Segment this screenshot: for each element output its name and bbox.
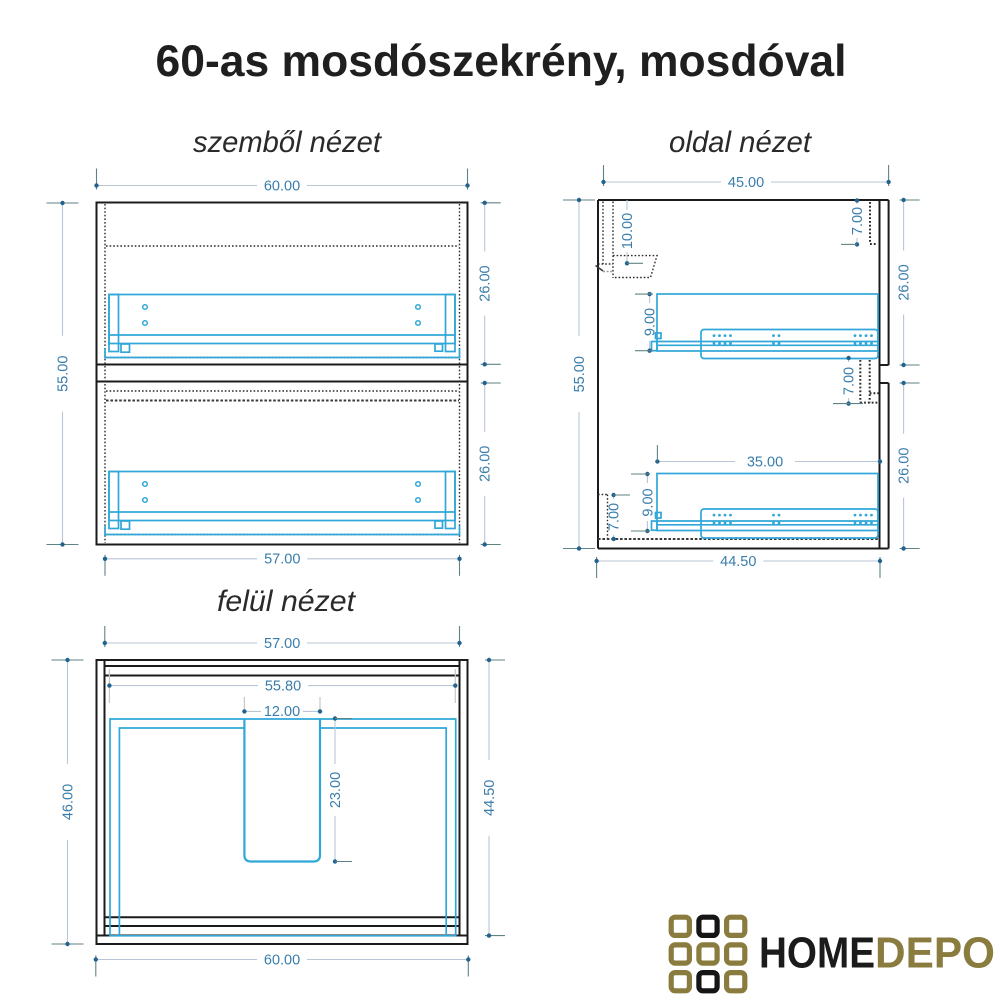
svg-text:9.00: 9.00 <box>640 488 656 516</box>
svg-text:7.00: 7.00 <box>842 367 858 395</box>
svg-text:57.00: 57.00 <box>264 636 300 652</box>
svg-text:12.00: 12.00 <box>264 704 300 720</box>
svg-text:60.00: 60.00 <box>264 178 300 194</box>
svg-text:9.00: 9.00 <box>643 308 659 336</box>
svg-text:23.00: 23.00 <box>328 772 344 808</box>
svg-text:szemből nézet: szemből nézet <box>193 126 383 159</box>
svg-text:26.00: 26.00 <box>897 448 913 484</box>
svg-text:7.00: 7.00 <box>607 503 623 531</box>
svg-text:oldal nézet: oldal nézet <box>669 126 813 159</box>
svg-text:10.00: 10.00 <box>620 213 636 249</box>
svg-text:55.00: 55.00 <box>572 356 588 392</box>
svg-text:26.00: 26.00 <box>478 265 494 301</box>
svg-text:45.00: 45.00 <box>728 175 764 191</box>
svg-text:55.00: 55.00 <box>55 356 71 392</box>
svg-text:26.00: 26.00 <box>478 446 494 482</box>
svg-text:35.00: 35.00 <box>747 454 783 470</box>
svg-text:HOME: HOME <box>759 929 875 978</box>
svg-text:44.50: 44.50 <box>482 780 498 816</box>
svg-text:57.00: 57.00 <box>264 552 300 568</box>
svg-text:60-as mosdószekrény, mosdóval: 60-as mosdószekrény, mosdóval <box>156 37 847 86</box>
svg-text:55.80: 55.80 <box>265 678 301 694</box>
svg-text:46.00: 46.00 <box>60 784 76 820</box>
svg-text:7.00: 7.00 <box>850 207 866 235</box>
svg-text:felül nézet: felül nézet <box>217 585 357 618</box>
svg-text:26.00: 26.00 <box>897 264 913 300</box>
svg-text:DEPO: DEPO <box>875 929 995 978</box>
svg-text:60.00: 60.00 <box>264 952 300 968</box>
svg-text:44.50: 44.50 <box>720 554 756 570</box>
